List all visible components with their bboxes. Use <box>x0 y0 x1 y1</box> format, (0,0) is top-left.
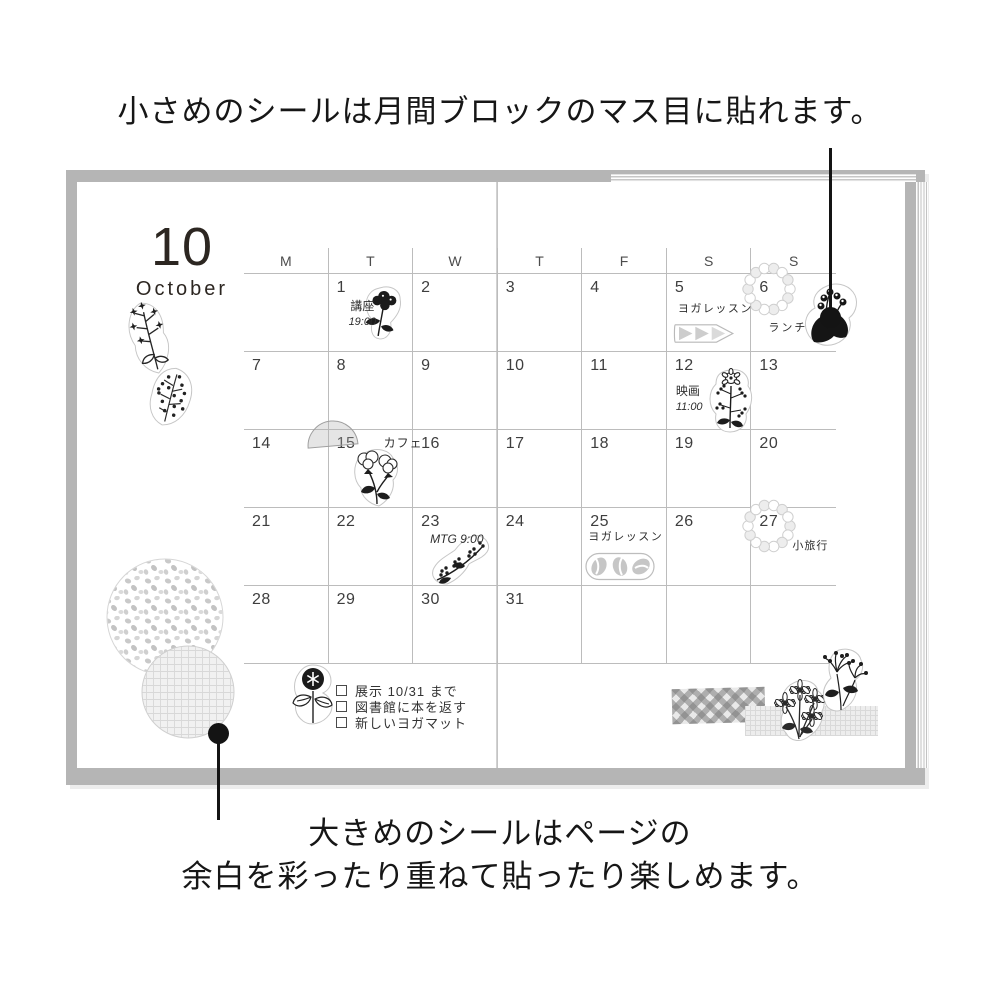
day-number: 18 <box>590 435 609 453</box>
checklist: 展示 10/31 まで 図書館に本を返す 新しいヨガマット <box>336 683 467 731</box>
checkbox-icon <box>336 717 347 728</box>
planner-spread: 10 October MTWTFSS1講座19:002345ヨガレッスン6ランチ… <box>77 182 905 768</box>
calendar-day-cell: 9 <box>413 352 498 430</box>
calendar-day-cell: 16 <box>413 430 498 508</box>
calendar-day-cell: 19 <box>667 430 752 508</box>
day-number: 28 <box>252 591 271 609</box>
day-number: 3 <box>506 279 515 297</box>
weekday-header: M <box>244 248 329 274</box>
event-time: 11:00 <box>676 400 703 414</box>
event-label: ランチ <box>768 321 807 335</box>
event-text: 映画 <box>676 384 700 398</box>
calendar-day-cell: 4 <box>582 274 667 352</box>
calendar-day-cell: 20 <box>751 430 836 508</box>
calendar-day-cell: 18 <box>582 430 667 508</box>
day-number: 23 <box>421 513 440 531</box>
callout-dot-bottom <box>208 723 229 744</box>
month-number: 10 <box>117 216 247 278</box>
day-number: 16 <box>421 435 440 453</box>
calendar-day-cell: 24 <box>498 508 583 586</box>
coffee-beans-sticker <box>585 552 655 582</box>
event-label: 小旅行 <box>792 539 828 553</box>
event-label: ヨガレッスン <box>588 530 663 544</box>
checklist-flower-sticker <box>285 663 341 729</box>
flower-day12-sticker <box>704 368 758 434</box>
weekday-header: S <box>667 248 752 274</box>
caption-small-stickers: 小さめのシールは月間ブロックのマス目に貼れます。 <box>0 86 1000 131</box>
pompon-flower-sticker <box>815 648 869 716</box>
callout-dot-top <box>820 307 841 328</box>
event-label: 映画11:00 <box>676 384 703 414</box>
half-circle-day15-sticker <box>304 418 360 451</box>
day-number: 9 <box>421 357 430 375</box>
month-name: October <box>105 278 259 301</box>
day-number: 31 <box>506 591 525 609</box>
day-number: 19 <box>675 435 694 453</box>
event-label: 講座19:00 <box>349 299 377 329</box>
calendar-day-cell: 17 <box>498 430 583 508</box>
checklist-item-label: 新しいヨガマット <box>355 713 467 732</box>
calendar-day-cell: 31 <box>498 586 583 664</box>
triangle-arrows-sticker <box>671 321 737 346</box>
event-time: 19:00 <box>349 315 377 329</box>
calendar-day-cell: 11 <box>582 352 667 430</box>
day-number: 27 <box>759 513 778 531</box>
weekday-header: F <box>582 248 667 274</box>
day-number: 7 <box>252 357 261 375</box>
day-number: 30 <box>421 591 440 609</box>
planner-promo-image: 小さめのシールは月間ブロックのマス目に貼れます。 10 October MTWT… <box>0 0 1000 1000</box>
calendar-day-cell: 30 <box>413 586 498 664</box>
checklist-item: 図書館に本を返す <box>336 699 467 714</box>
weekday-header: T <box>498 248 583 274</box>
monthly-calendar-grid: MTWTFSS1講座19:002345ヨガレッスン6ランチ789101112映画… <box>244 248 836 664</box>
caption-large-line1: 大きめのシールはページの <box>0 812 1000 855</box>
calendar-day-cell <box>667 586 752 664</box>
event-text: ヨガレッスン <box>588 531 663 543</box>
day-number: 2 <box>421 279 430 297</box>
day-number: 10 <box>506 357 525 375</box>
caption-large-stickers: 大きめのシールはページの 余白を彩ったり重ねて貼ったり楽しめます。 <box>0 812 1000 898</box>
day-number: 5 <box>675 279 684 297</box>
event-text: 講座 <box>350 299 374 313</box>
day-number: 4 <box>590 279 599 297</box>
calendar-day-cell: 22 <box>329 508 414 586</box>
calendar-day-cell: 29 <box>329 586 414 664</box>
day-number: 17 <box>506 435 525 453</box>
calendar-day-cell: 2 <box>413 274 498 352</box>
day-number: 24 <box>506 513 525 531</box>
caption-large-line2: 余白を彩ったり重ねて貼ったり楽しめます。 <box>0 855 1000 898</box>
calendar-day-cell <box>582 586 667 664</box>
callout-line-top <box>829 148 832 318</box>
day-number: 21 <box>252 513 271 531</box>
event-label: カフェ <box>384 436 423 452</box>
event-text: 小旅行 <box>792 540 828 552</box>
planner-book: 10 October MTWTFSS1講座19:002345ヨガレッスン6ランチ… <box>66 170 925 785</box>
weekday-header: T <box>329 248 414 274</box>
day-number: 13 <box>759 357 778 375</box>
callout-line-bottom <box>217 742 220 820</box>
day-number: 14 <box>252 435 271 453</box>
day-number: 22 <box>337 513 356 531</box>
checkbox-icon <box>336 685 347 696</box>
berry-leaf-sticker <box>138 362 204 433</box>
day-number: 29 <box>337 591 356 609</box>
day-number: 11 <box>590 357 608 375</box>
checklist-item: 新しいヨガマット <box>336 715 467 730</box>
day-number: 25 <box>590 513 609 531</box>
page-edges-right <box>916 182 928 768</box>
calendar-day-cell: 13 <box>751 352 836 430</box>
day-number: 8 <box>337 357 346 375</box>
calendar-day-cell: 7 <box>244 352 329 430</box>
weekday-header: W <box>413 248 498 274</box>
calendar-day-cell: 28 <box>244 586 329 664</box>
checkbox-icon <box>336 701 347 712</box>
event-text: MTG 9:00 <box>430 532 483 546</box>
event-text: カフェ <box>384 436 423 450</box>
day-number: 12 <box>675 357 694 375</box>
event-label: ヨガレッスン <box>678 302 753 316</box>
day-number: 26 <box>675 513 694 531</box>
checklist-item: 展示 10/31 まで <box>336 683 467 698</box>
event-text: ヨガレッスン <box>678 303 753 315</box>
calendar-day-cell <box>244 274 329 352</box>
calendar-day-cell: 10 <box>498 352 583 430</box>
calendar-day-cell: 3 <box>498 274 583 352</box>
day-number: 6 <box>759 279 768 297</box>
day-number: 20 <box>759 435 778 453</box>
day-number: 1 <box>337 279 346 297</box>
event-label: MTG 9:00 <box>430 532 483 548</box>
calendar-day-cell: 21 <box>244 508 329 586</box>
cotton-flower-sticker <box>349 448 405 508</box>
event-text: ランチ <box>768 322 807 334</box>
page-edges-top <box>611 174 916 182</box>
calendar-day-cell: 26 <box>667 508 752 586</box>
